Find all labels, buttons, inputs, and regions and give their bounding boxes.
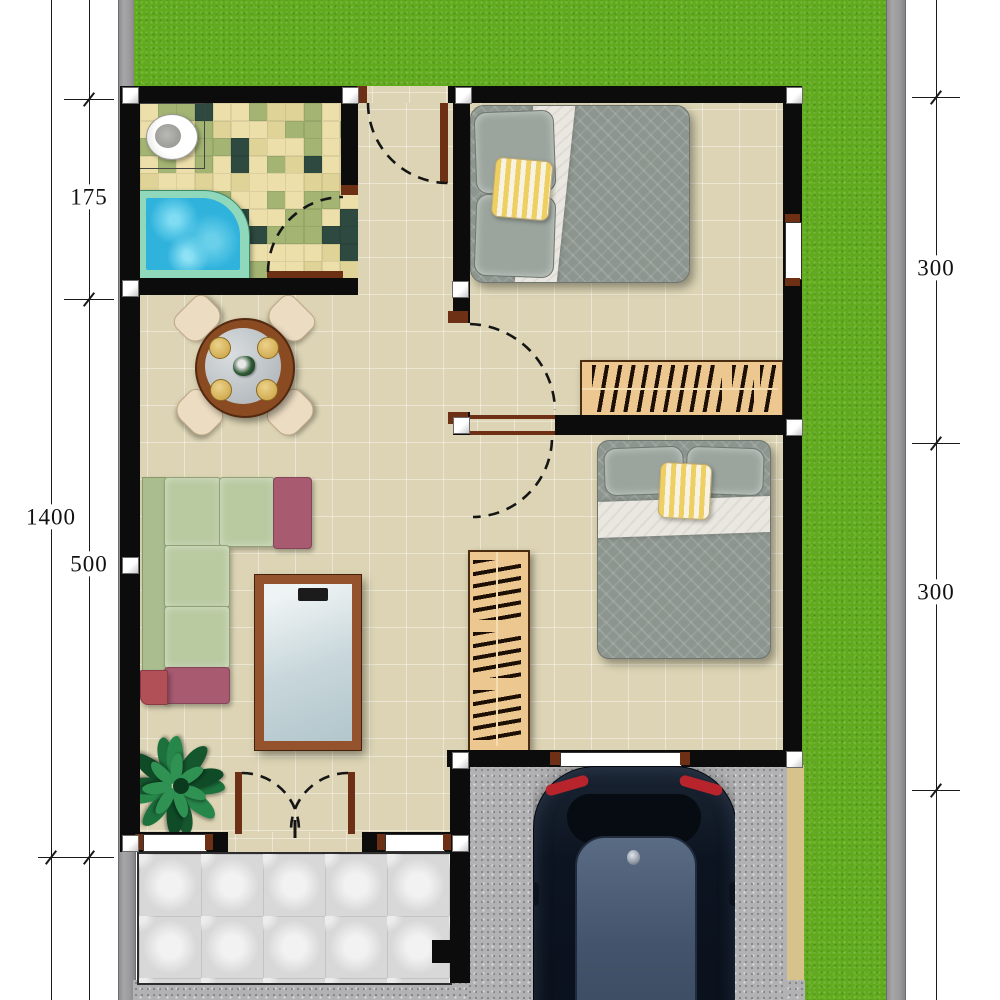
bath-tile <box>267 209 286 227</box>
table-centerpiece <box>233 356 255 376</box>
bath-tile <box>267 103 286 121</box>
dimension-label-bedroom1: 300 <box>913 255 959 280</box>
car-mirror <box>729 882 735 906</box>
plate-icon <box>257 337 279 359</box>
wall-top-right <box>448 86 802 103</box>
column-marker <box>122 280 139 297</box>
bath-tile <box>304 209 323 227</box>
sofa-cushion <box>219 477 275 547</box>
plate-icon <box>256 379 278 401</box>
wardrobe <box>468 550 530 752</box>
back-door-leaf <box>440 103 448 183</box>
bath-tile <box>213 156 232 174</box>
bath-tile <box>322 191 341 209</box>
garden-grass-top <box>134 0 886 86</box>
remote-device-icon <box>298 588 328 601</box>
bath-tile <box>322 156 341 174</box>
column-marker <box>122 557 139 574</box>
column-marker <box>455 87 472 104</box>
bath-tile <box>267 226 286 244</box>
pavement-strip-right <box>886 0 906 1000</box>
dimension-label-total-height: 1400 <box>22 504 80 529</box>
bath-tile <box>249 103 268 121</box>
front-door-leaf <box>235 772 242 834</box>
window-frame <box>680 752 690 765</box>
bath-tile <box>249 261 268 279</box>
bath-tile <box>322 121 341 139</box>
sofa-corner-cushion <box>140 670 168 705</box>
column-marker <box>786 751 803 768</box>
bath-tile <box>231 121 250 139</box>
bath-tile <box>267 156 286 174</box>
plant-center <box>173 778 189 794</box>
bath-tile <box>267 173 286 191</box>
column-marker <box>342 87 359 104</box>
bath-tile <box>231 103 250 121</box>
accent-pillow <box>658 462 713 521</box>
bath-tile <box>195 173 214 191</box>
bath-tile <box>285 103 304 121</box>
dimension-line-right <box>936 0 937 1000</box>
carport-side-curb <box>786 765 804 1000</box>
bath-tile <box>340 209 358 227</box>
bath-tile <box>249 244 268 262</box>
toilet-bowl <box>155 124 181 148</box>
bath-tile <box>267 138 286 156</box>
bath-tile <box>158 173 177 191</box>
bath-tile <box>231 156 250 174</box>
column-marker <box>122 835 139 852</box>
window-bedroom2-south <box>560 752 682 767</box>
bed-bedroom-2 <box>597 440 771 659</box>
plate-icon <box>210 379 232 401</box>
window-bedroom1-east <box>785 222 802 280</box>
window-frame <box>785 278 800 286</box>
dimension-label-bathroom: 175 <box>66 184 112 209</box>
bath-tile <box>322 138 341 156</box>
bath-tile <box>304 244 323 262</box>
bath-tile <box>213 103 232 121</box>
car-icon <box>533 766 735 1000</box>
bath-tile <box>285 209 304 227</box>
bath-tile <box>340 244 358 262</box>
bath-tile <box>322 103 341 121</box>
wall-bathroom-south <box>120 278 358 295</box>
wardrobe-divider <box>496 552 498 746</box>
bath-tile <box>322 209 341 227</box>
front-door-leaf <box>348 772 355 834</box>
window-front-right <box>385 834 445 852</box>
bath-tile <box>231 173 250 191</box>
bathroom-door-leaf <box>267 271 343 278</box>
bed-bedroom-1 <box>470 105 690 283</box>
bath-tile <box>285 173 304 191</box>
bath-tile <box>249 173 268 191</box>
bath-tile <box>140 173 159 191</box>
window-frame <box>785 214 800 222</box>
window-frame <box>443 834 451 850</box>
bath-tile <box>285 156 304 174</box>
bookshelf <box>580 360 784 419</box>
tv-stand <box>255 575 361 750</box>
bath-tile <box>267 244 286 262</box>
bath-tile <box>213 173 232 191</box>
floor-plan: 1400 175 500 300 300 <box>0 0 1000 1000</box>
car-logo-icon <box>627 850 640 865</box>
sofa-cushion <box>164 477 221 547</box>
bath-tile <box>249 191 268 209</box>
column-marker <box>122 87 139 104</box>
dimension-label-bedroom2: 300 <box>913 579 959 604</box>
bath-tile <box>322 226 341 244</box>
bath-tile <box>304 121 323 139</box>
front-door-opening <box>228 832 362 852</box>
bath-tile <box>340 226 358 244</box>
plate-icon <box>209 337 231 359</box>
bath-tile <box>304 103 323 121</box>
bath-tile <box>249 121 268 139</box>
wall-top-left <box>120 86 366 103</box>
window-frame <box>550 752 560 765</box>
car-mirror <box>533 882 539 906</box>
bath-tile <box>285 121 304 139</box>
window-frame <box>377 834 385 850</box>
bath-tile <box>267 121 286 139</box>
potted-plant-icon <box>133 738 229 834</box>
shelf-divider <box>582 388 778 390</box>
door-frame <box>470 415 555 419</box>
terrace-pillar <box>432 940 470 963</box>
bath-tile <box>176 173 195 191</box>
sofa-seat-end <box>164 667 230 704</box>
bath-tile <box>285 244 304 262</box>
bath-tile <box>231 138 250 156</box>
bath-tile <box>249 209 268 227</box>
door-frame <box>470 431 555 435</box>
column-marker <box>452 835 469 852</box>
column-marker <box>786 419 803 436</box>
back-door-opening <box>365 86 448 103</box>
bath-tile <box>304 138 323 156</box>
sofa-cushion <box>164 545 230 608</box>
dimension-line-left-inner <box>89 0 90 1000</box>
bath-tile <box>285 191 304 209</box>
column-marker <box>786 87 803 104</box>
dimension-label-living: 500 <box>66 551 112 576</box>
bath-tile <box>285 226 304 244</box>
wall-west <box>120 86 140 852</box>
bath-tile <box>249 226 268 244</box>
accent-pillow <box>490 157 553 222</box>
bath-tile <box>267 191 286 209</box>
bath-tile <box>285 138 304 156</box>
door-jamb <box>448 311 468 323</box>
bath-tile <box>213 121 232 139</box>
dimension-line-left-outer <box>51 0 52 1000</box>
sofa-armrest <box>273 477 312 549</box>
bathtub-water <box>146 198 240 270</box>
bath-tile <box>213 138 232 156</box>
garden-grass-right <box>802 0 886 1000</box>
bath-tile <box>304 226 323 244</box>
bath-tile <box>322 244 341 262</box>
terrace-floor <box>137 852 452 985</box>
window-frame <box>205 834 213 850</box>
window-front-left <box>143 834 207 852</box>
wall-bathroom-east <box>341 103 358 195</box>
bath-tile <box>249 138 268 156</box>
door-jamb <box>341 185 358 195</box>
bath-tile <box>304 173 323 191</box>
column-marker <box>452 752 469 769</box>
column-marker <box>453 417 470 434</box>
bath-tile <box>304 156 323 174</box>
bath-tile <box>304 191 323 209</box>
column-marker <box>452 281 469 298</box>
bath-tile <box>322 173 341 191</box>
bath-tile <box>249 156 268 174</box>
sofa-back-rail <box>142 477 166 675</box>
sofa-cushion <box>164 606 230 669</box>
